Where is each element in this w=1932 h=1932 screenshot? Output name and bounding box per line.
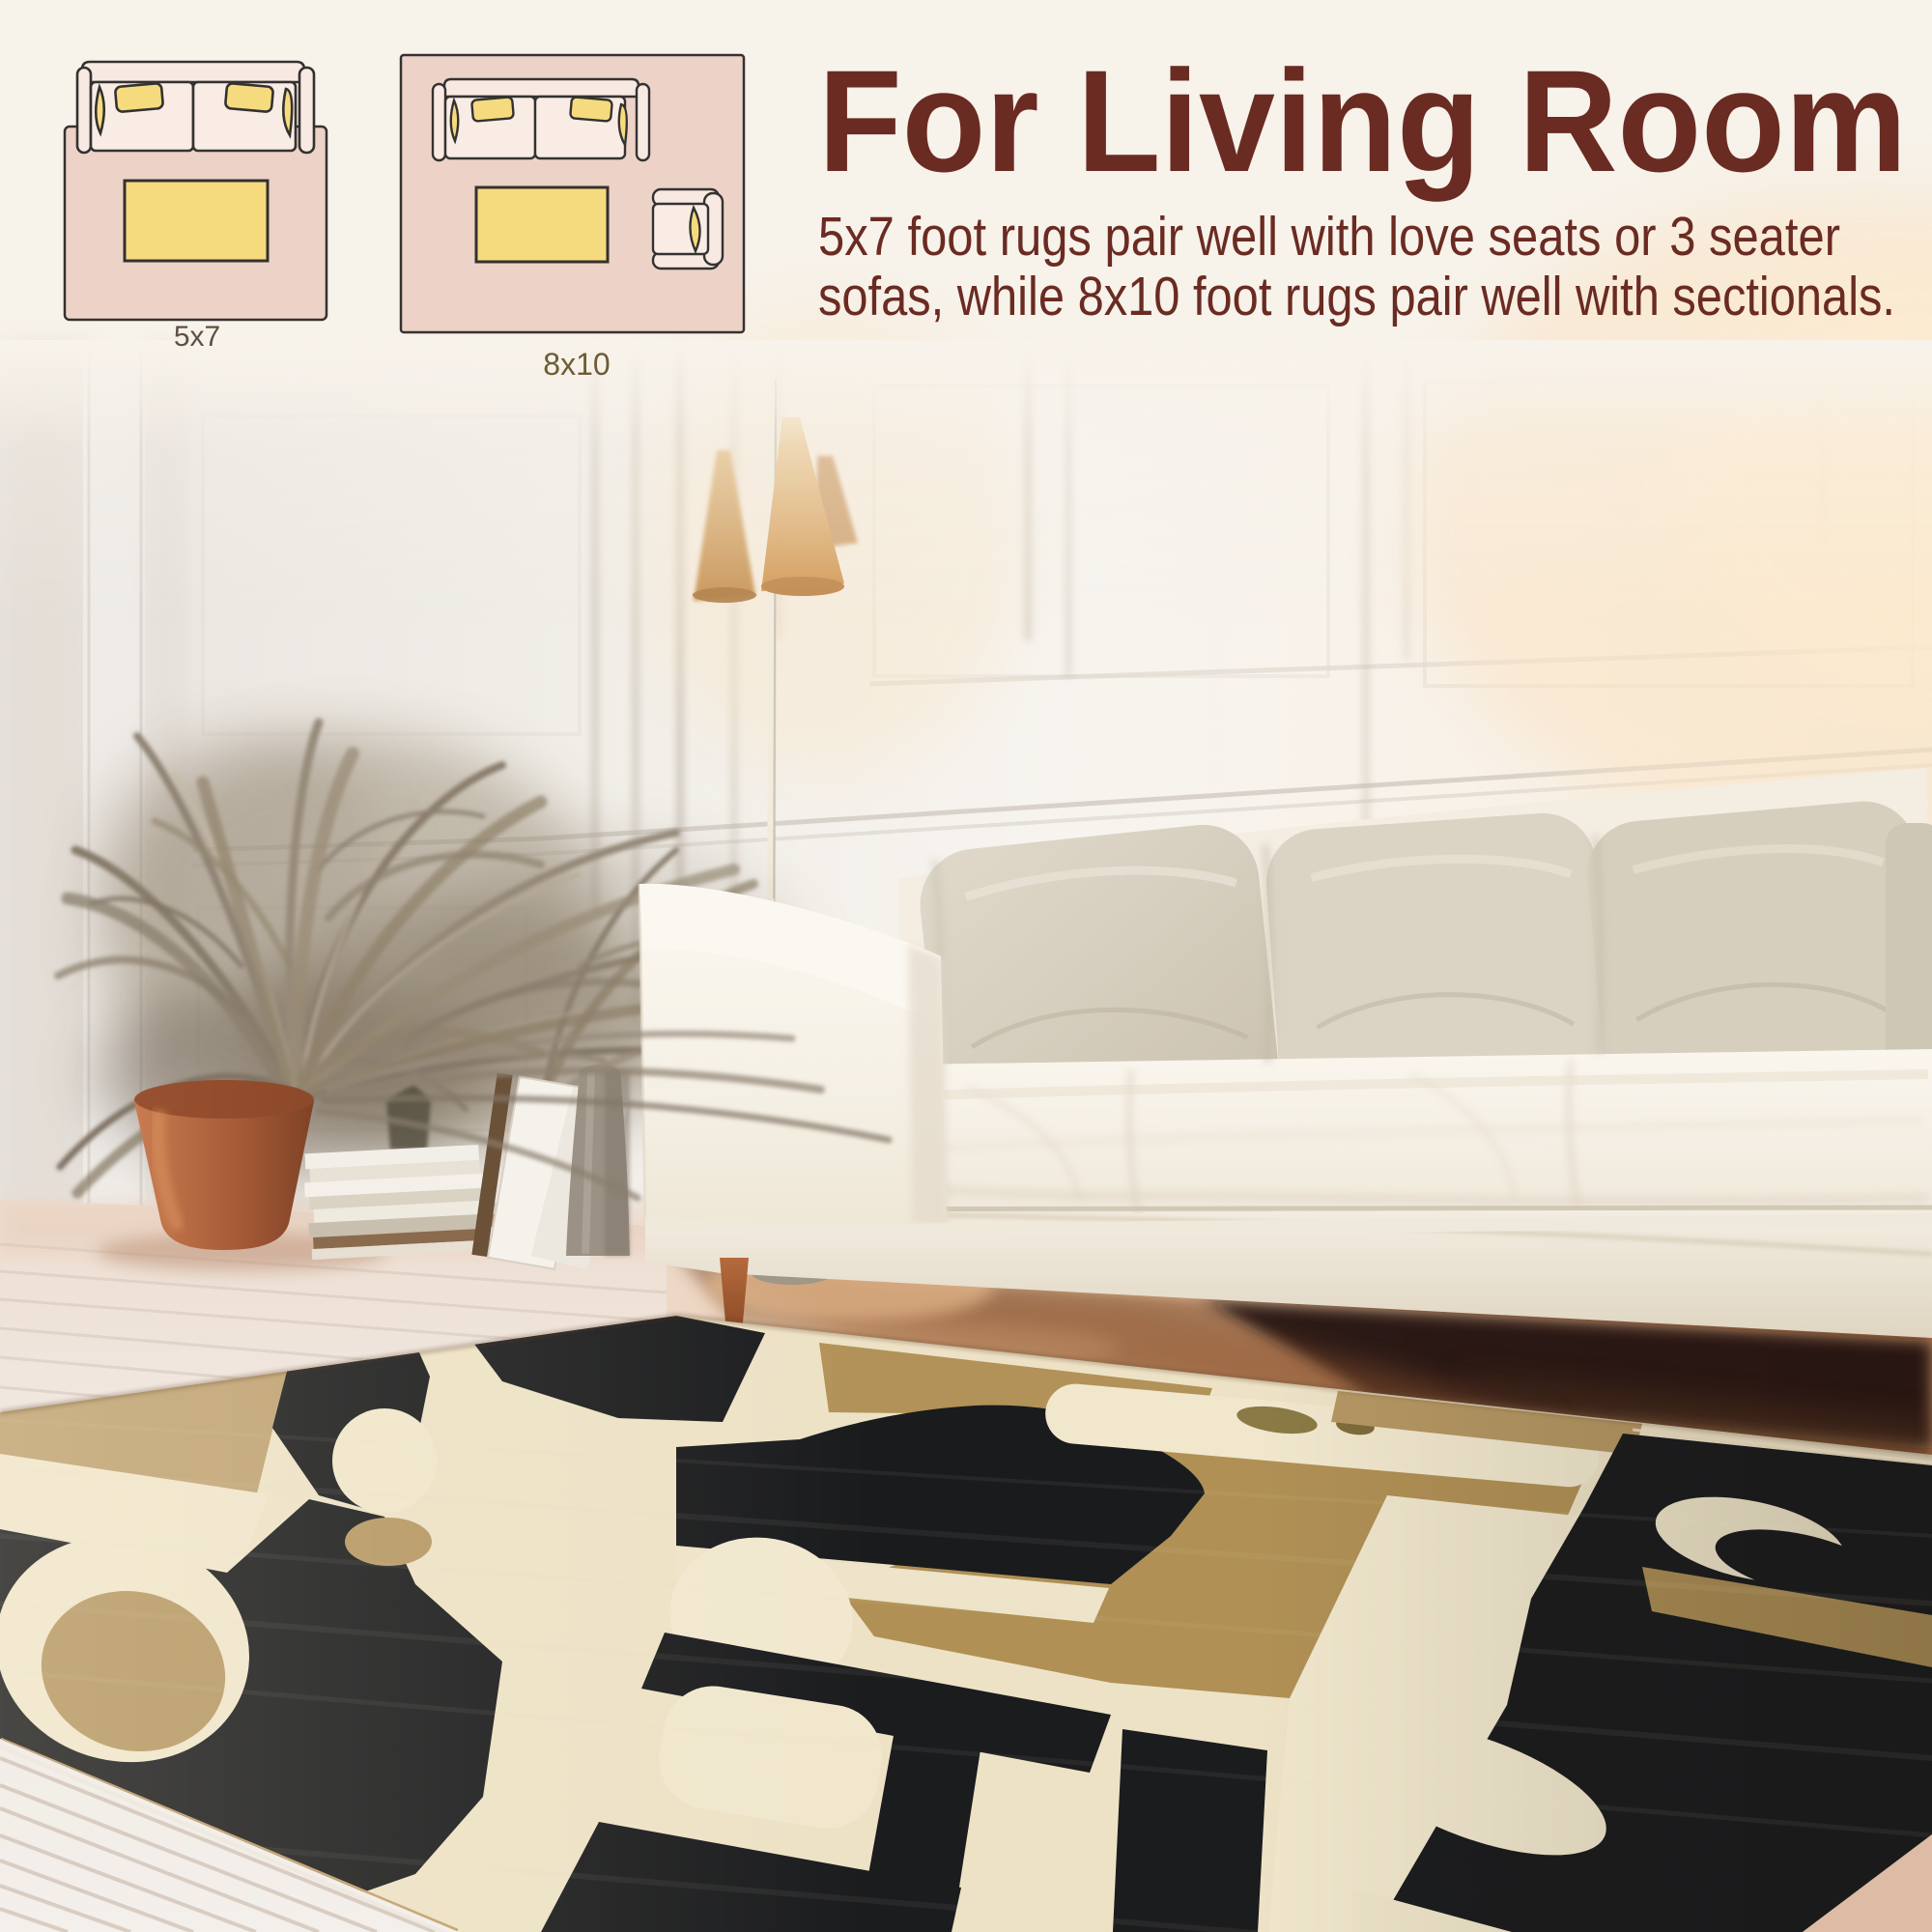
svg-text:For Living Room: For Living Room <box>818 40 1907 202</box>
svg-text:8x10: 8x10 <box>543 347 610 382</box>
svg-text:sofas, while 8x10 foot rugs pa: sofas, while 8x10 foot rugs pair well wi… <box>818 266 1895 327</box>
svg-text:5x7 foot rugs pair well with l: 5x7 foot rugs pair well with love seats … <box>818 206 1840 268</box>
svg-text:5x7: 5x7 <box>174 321 220 353</box>
